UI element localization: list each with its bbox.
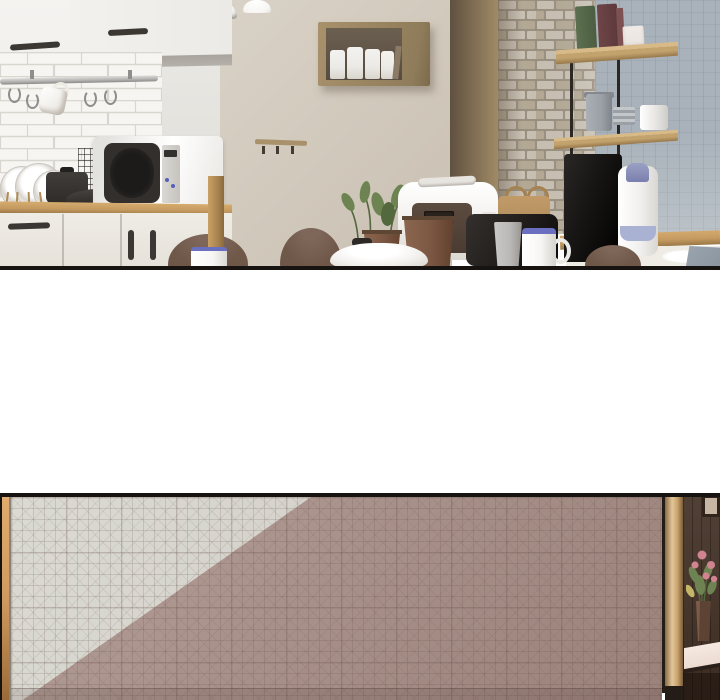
glass-jar (330, 50, 345, 79)
cabinet-handle (128, 230, 134, 260)
left-wood-jamb (2, 497, 9, 700)
s-hook (8, 86, 21, 103)
cabinet-seam (62, 214, 64, 266)
green-book (575, 6, 597, 51)
s-hook (104, 88, 117, 105)
cabinet-seam (120, 214, 122, 266)
thermos-band (620, 226, 656, 241)
panel-gap (0, 270, 720, 493)
microwave-window (110, 148, 154, 198)
microwave-display (164, 150, 177, 157)
s-hook (26, 92, 39, 109)
glass-jar (365, 49, 380, 79)
rail-bracket (30, 70, 34, 79)
flower-arrangement (686, 541, 720, 653)
white-casserole (330, 243, 428, 268)
pot-rim (402, 216, 456, 220)
white-canister (640, 105, 668, 130)
wall-base-shadow (11, 688, 662, 700)
wall-hook (291, 146, 294, 154)
panel-border-top (0, 493, 720, 497)
thermos-cap (626, 163, 649, 182)
upper-cabinet-mid (70, 0, 232, 58)
stacked-item (613, 107, 635, 125)
s-hook (84, 90, 97, 107)
cabinet-handle (150, 230, 156, 260)
panel-lattice-wall (0, 493, 720, 700)
microwave-button (171, 184, 175, 188)
rail-bracket (128, 70, 132, 79)
comic-strip-viewport (0, 0, 720, 700)
gray-object (686, 246, 720, 266)
door-trim (665, 497, 683, 686)
jamb-seam (9, 497, 11, 700)
pendant-lamp (243, 0, 271, 13)
gray-canister (586, 94, 612, 131)
lattice-grid-pattern (11, 497, 662, 700)
picture-frame (702, 497, 720, 517)
panel-kitchen (0, 0, 720, 270)
glass-jar (347, 47, 363, 79)
door-trim-base (665, 686, 683, 700)
pot-rim (362, 230, 402, 234)
sill-shadow (683, 673, 720, 700)
wall-hook (262, 146, 265, 154)
wall-hook (276, 146, 279, 154)
microwave-button (165, 178, 169, 182)
gray-cup (494, 222, 522, 266)
